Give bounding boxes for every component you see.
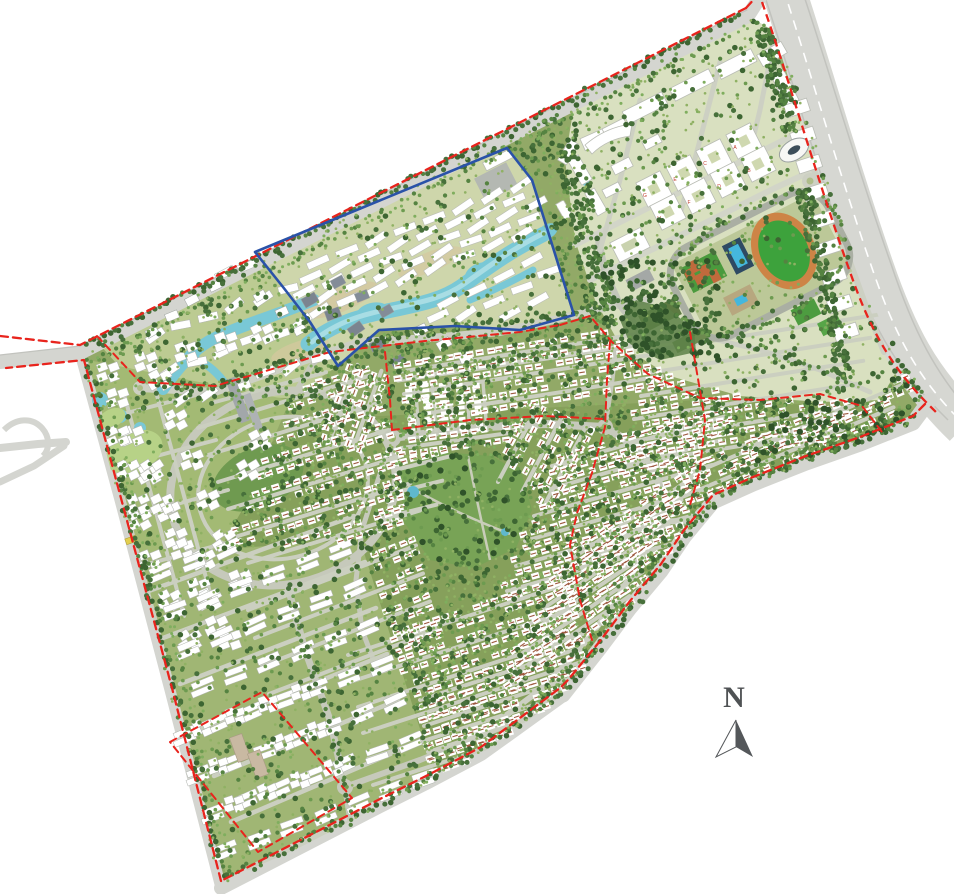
svg-text:N: N <box>723 681 745 714</box>
svg-text:F: F <box>687 200 690 206</box>
svg-text:C: C <box>703 161 707 167</box>
svg-text:G: G <box>643 193 647 199</box>
